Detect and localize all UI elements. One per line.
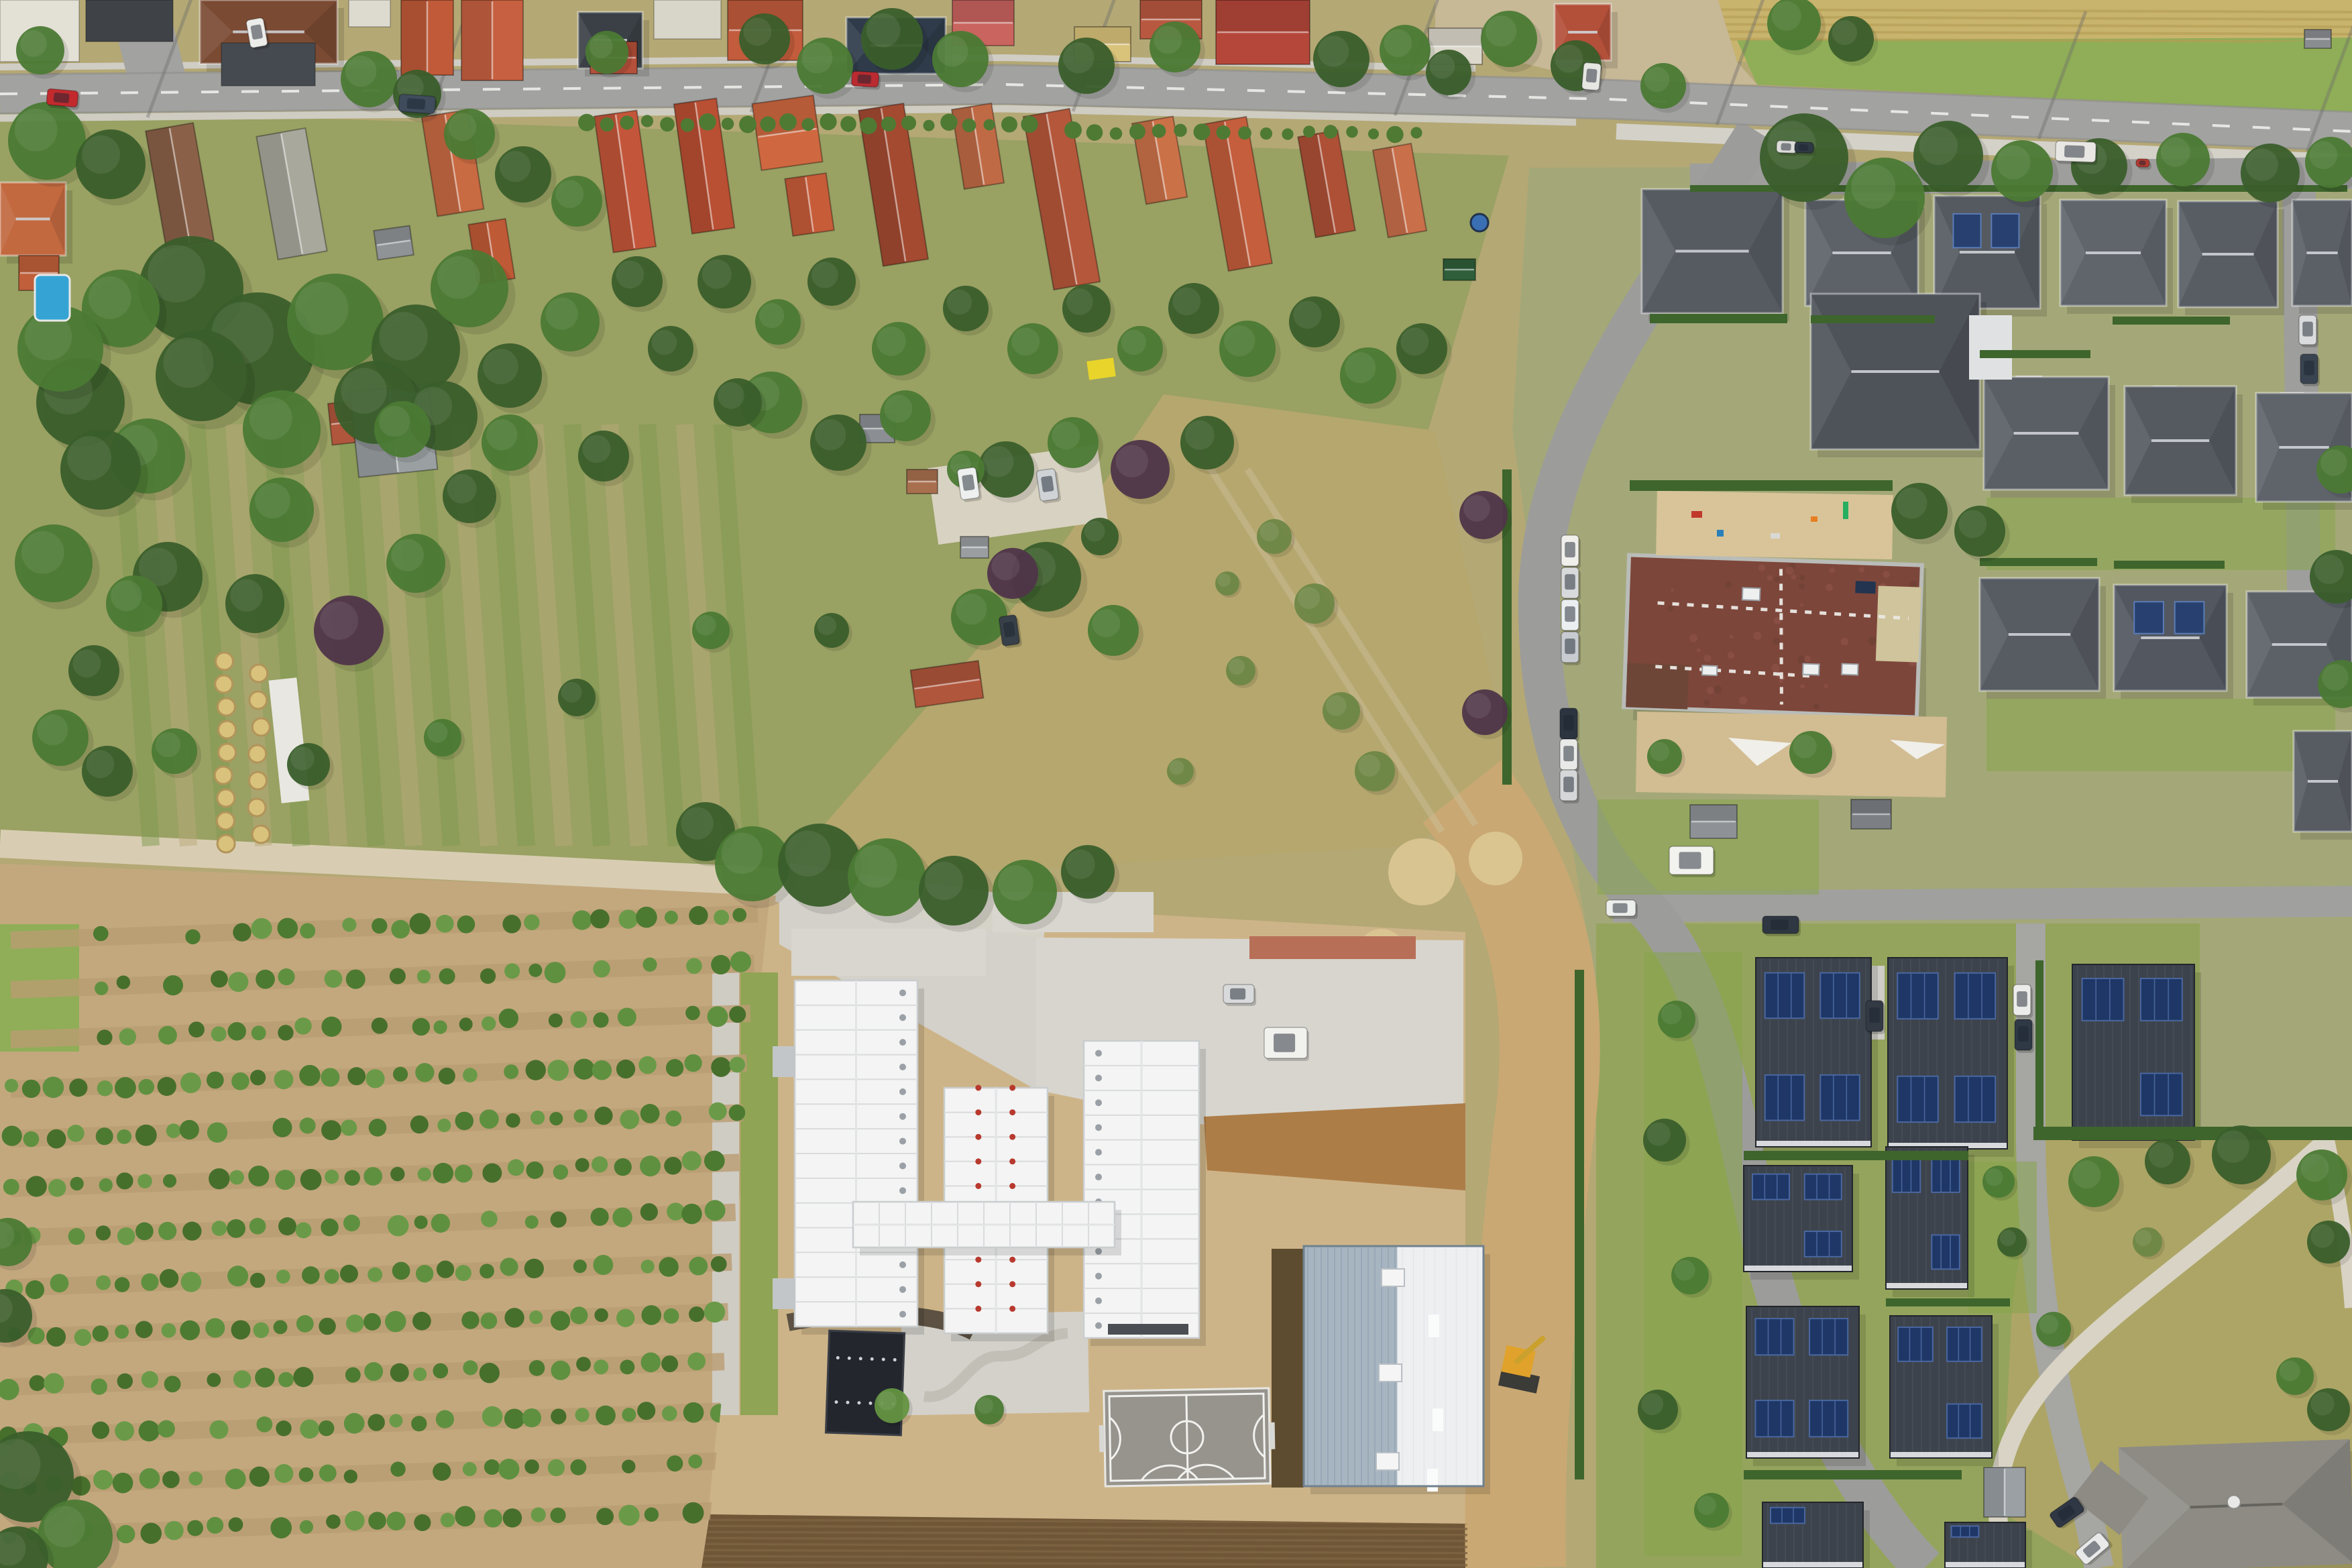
orchard-tree [390, 1363, 409, 1382]
pv-panel [2141, 1073, 2182, 1115]
orchard-tree [326, 1514, 341, 1529]
orchard-tree [667, 1455, 683, 1471]
hay-bale [217, 835, 235, 852]
tree-highlight [2310, 1392, 2334, 1415]
orchard-tree [437, 1261, 454, 1278]
orchard-tree [97, 1029, 112, 1045]
tree-highlight [1345, 352, 1376, 383]
orchard-tree [730, 952, 751, 972]
orchard-tree [392, 1262, 410, 1280]
orchard-tree [140, 1523, 162, 1545]
hedge-bush [1410, 127, 1422, 138]
orchard-tree [91, 1378, 107, 1394]
orchard-tree [180, 1072, 201, 1093]
orchard-tree [596, 1508, 614, 1525]
play-equipment [1811, 516, 1817, 522]
tree-highlight [991, 552, 1019, 580]
orchard-tree [342, 917, 356, 932]
orchard-tree [278, 1025, 294, 1041]
pv-panel [1955, 973, 1996, 1019]
pv-panel [1805, 1174, 1842, 1200]
tree-highlight [854, 845, 897, 888]
hedge [1575, 970, 1584, 1479]
ac-unit [1095, 1298, 1102, 1304]
car-glass [1565, 574, 1575, 590]
pv-panel [1765, 1075, 1804, 1121]
orchard-tree [372, 918, 387, 934]
tree-highlight [345, 56, 376, 87]
pv-panel [1947, 1404, 1982, 1438]
orchard-tree [321, 1068, 339, 1086]
orchard-tree [659, 1257, 679, 1277]
orchard-tree [325, 970, 343, 988]
orchard-tree [594, 1359, 608, 1374]
car-glass [1565, 606, 1575, 622]
orchard-tree [116, 1172, 133, 1189]
skylight [1742, 587, 1760, 600]
tree-highlight [681, 807, 713, 839]
tree-highlight [1919, 127, 1958, 165]
tree-highlight [500, 151, 530, 182]
orchard-tree [227, 1219, 245, 1238]
orchard-tree [480, 1363, 500, 1383]
orchard-tree [666, 1059, 683, 1076]
orchard-tree [576, 1357, 591, 1371]
orchard-tree [340, 1265, 358, 1283]
orchard-tree [321, 1219, 338, 1236]
orchard-tree [682, 1151, 702, 1170]
orchard-tree [439, 1068, 455, 1084]
orchard-tree [115, 1077, 136, 1099]
orchard-tree [729, 1105, 746, 1121]
hedge-bush [923, 120, 935, 131]
orchard-tree [612, 1207, 632, 1227]
orchard-tree [572, 910, 592, 930]
shed [1851, 799, 1891, 829]
orchard-tree [274, 1464, 293, 1483]
lawn [1986, 699, 2335, 771]
orchard-tree [209, 1168, 229, 1189]
car [1561, 567, 1581, 601]
hedge-bush [1174, 124, 1186, 137]
ac-unit [1095, 1124, 1102, 1131]
orchard-tree [455, 1265, 471, 1281]
orchard-tree [300, 1419, 319, 1439]
car-glass [1003, 622, 1016, 638]
hedge-bush [1216, 125, 1230, 139]
pv-panel [1771, 1508, 1805, 1524]
orchard-tree [319, 1420, 334, 1436]
ac-unit [899, 1064, 906, 1070]
hedge-bush [881, 117, 896, 131]
pv-panel [1897, 1076, 1938, 1122]
tree-highlight [1661, 1004, 1682, 1025]
red-joint [1009, 1281, 1015, 1287]
orchard-tree [390, 1167, 404, 1181]
orchard-tree [526, 1060, 546, 1080]
orchard-tree [272, 1118, 292, 1137]
solar-house [1746, 1306, 1859, 1458]
ac-unit [1095, 1174, 1102, 1180]
tree-highlight [1298, 587, 1320, 609]
tree-highlight [702, 260, 732, 289]
hay-bale [215, 675, 233, 693]
orchard-tree [575, 1408, 589, 1422]
car [1606, 900, 1638, 919]
tree-highlight [1326, 695, 1347, 716]
orchard-tree [436, 915, 454, 933]
orchard-tree [553, 1164, 569, 1180]
gym-building [1304, 1246, 1483, 1492]
hedge-bush [1194, 123, 1211, 140]
roof-vent [1376, 1453, 1399, 1470]
tree-highlight [1384, 29, 1412, 57]
orchard-tree [300, 1169, 322, 1190]
village-house [0, 182, 66, 256]
stair-landing [773, 1046, 795, 1077]
orchard-tree [482, 1164, 502, 1183]
sand-heap [1388, 838, 1455, 905]
orchard-tree [48, 1179, 66, 1197]
hedge-bush [1129, 123, 1145, 139]
hay-bale [217, 812, 234, 830]
tree-highlight [1486, 15, 1516, 46]
orchard-tree [530, 1111, 545, 1125]
orchard-tree [573, 1259, 587, 1273]
dark-fence [1108, 1324, 1188, 1335]
orchard-tree [548, 1459, 565, 1476]
stair-landing [773, 1278, 795, 1309]
tree-highlight [1466, 693, 1491, 718]
orchard-tree [732, 908, 746, 922]
orchard-tree [117, 1227, 135, 1245]
orchard-tree [164, 1376, 181, 1392]
car [1560, 739, 1579, 773]
orchard-tree [412, 1018, 430, 1035]
orchard-tree [276, 1420, 291, 1436]
tree-highlight [2310, 1224, 2334, 1247]
orchard-tree [437, 1119, 451, 1132]
tree-highlight [44, 1506, 86, 1548]
shed [374, 225, 414, 260]
orchard-tree [278, 968, 294, 985]
tree-highlight [815, 419, 846, 450]
car-glass [1230, 989, 1245, 1000]
tree-highlight [1185, 421, 1215, 450]
ac-unit [899, 1262, 906, 1268]
yellow-tarp [1086, 357, 1116, 380]
orchard-tree [618, 1505, 639, 1526]
west-walkway [712, 972, 739, 1415]
hedge-bush [1152, 124, 1166, 138]
tree-highlight [1066, 288, 1093, 315]
orchard-tree [590, 909, 610, 929]
tree-highlight [427, 722, 448, 743]
solar-house [1888, 958, 2007, 1149]
orchard-tree [139, 1420, 160, 1441]
orchard-tree [364, 1362, 383, 1381]
tree-highlight [937, 36, 968, 66]
village-house [785, 173, 834, 236]
tree-highlight [743, 17, 771, 46]
orchard-tree [711, 955, 730, 974]
tree-highlight [82, 135, 120, 174]
hay-bale [219, 744, 236, 761]
orchard-tree [640, 1203, 658, 1221]
orchard-tree [504, 1064, 518, 1079]
orchard-tree [620, 1110, 639, 1129]
hedge [2114, 561, 2225, 569]
orchard-tree [455, 1506, 475, 1527]
hay-bale [215, 767, 232, 784]
orchard-tree [225, 1469, 246, 1490]
tree-highlight [582, 435, 610, 463]
tree-highlight [1675, 1260, 1695, 1281]
pv-panel [1947, 1327, 1982, 1361]
car [46, 89, 80, 110]
tree-highlight [718, 382, 744, 409]
orchard-tree [415, 1063, 434, 1082]
orchard-tree [117, 1374, 133, 1390]
pv-panel [1755, 1400, 1793, 1437]
orchard-tree [274, 1070, 294, 1089]
tree-highlight [1115, 445, 1147, 477]
play-equipment [1717, 530, 1724, 537]
orchard-tree [551, 1361, 570, 1380]
pv-panel [1805, 1231, 1842, 1257]
tree-highlight [1644, 67, 1669, 92]
car [2013, 985, 2033, 1018]
orchard-tree [640, 1156, 661, 1176]
hedge-bush [641, 115, 653, 127]
orchard-tree [522, 1408, 541, 1427]
subdivision-house [2114, 585, 2227, 691]
orchard-tree [181, 1272, 201, 1292]
orchard-tree [418, 1168, 431, 1181]
hedge-bush [779, 113, 797, 131]
orchard-tree [319, 1318, 336, 1335]
orchard-tree [385, 1311, 406, 1333]
tree-highlight [1400, 327, 1429, 355]
pv-panel [2082, 978, 2124, 1021]
orchard-tree [433, 1163, 453, 1184]
orchard-tree [409, 913, 431, 934]
tree-highlight [947, 290, 972, 315]
orchard-tree [47, 1129, 66, 1149]
orchard-tree [231, 1320, 250, 1339]
ac-unit [1095, 1273, 1102, 1280]
goal [1270, 1422, 1276, 1449]
tree-highlight [67, 436, 111, 480]
orchard-tree [319, 1465, 337, 1482]
car [851, 71, 881, 90]
tree-highlight [759, 303, 784, 328]
orchard-tree [368, 1268, 382, 1282]
orchard-tree [278, 1372, 294, 1388]
roof-shade [907, 469, 938, 482]
tree-highlight [1772, 1, 1801, 31]
orchard-tree [665, 1111, 681, 1127]
orchard-tree [708, 1006, 728, 1027]
orchard-tree [662, 1406, 677, 1421]
roof-shade [1443, 259, 1475, 270]
orchard-tree [689, 906, 708, 925]
hedge-bush [699, 113, 716, 131]
orchard-tree [119, 1028, 137, 1046]
orchard-tree [96, 1225, 111, 1240]
orchard-tree [344, 1413, 365, 1434]
roof-vent-pipe [1433, 1408, 1443, 1431]
tree-highlight [998, 865, 1033, 901]
hedge-bush [620, 115, 634, 129]
west-green-strip [740, 972, 778, 1415]
ac-unit [899, 1311, 906, 1318]
tree-highlight [448, 113, 476, 141]
tree-highlight [1172, 287, 1200, 315]
orchard-tree [344, 1469, 357, 1483]
orchard-tree [5, 1079, 18, 1093]
orchard-tree [413, 1367, 427, 1381]
lawn [1644, 952, 1742, 1556]
tree-highlight [2000, 1230, 2016, 1246]
orchard-tree [593, 1012, 608, 1027]
orchard-tree [93, 1470, 113, 1490]
orchard-tree [414, 1514, 431, 1531]
orchard-tree [641, 1305, 661, 1325]
orchard-tree [141, 1274, 158, 1291]
orchard-tree [504, 963, 520, 978]
hedge-bush [739, 116, 757, 133]
tree-highlight [37, 714, 68, 745]
orchard-tree [410, 1115, 429, 1133]
hay-bale [217, 789, 235, 807]
tree-highlight [1697, 1496, 1716, 1515]
orchard-tree [233, 923, 251, 941]
orchard-tree [162, 1323, 176, 1338]
hedge-bush [722, 117, 734, 129]
village-building [654, 0, 721, 39]
orchard-tree [368, 1512, 386, 1530]
tree-highlight [1293, 300, 1321, 329]
pv-panel [1898, 1327, 1933, 1361]
subdivision-house [1934, 196, 2040, 309]
orchard-tree [526, 1162, 543, 1179]
modular-building [853, 1202, 1115, 1247]
roof-shade [1140, 0, 1202, 19]
orchard-tree [685, 1006, 700, 1021]
orchard-tree [158, 1077, 176, 1096]
hay-bale [249, 772, 266, 789]
tree-highlight [391, 539, 423, 571]
orchard-tree [277, 918, 298, 939]
roof-shade [461, 0, 492, 80]
red-joint [975, 1085, 981, 1091]
orchard-tree [158, 1026, 177, 1045]
shed [1443, 259, 1475, 280]
tree-highlight [811, 262, 838, 288]
orchard-tree [158, 1222, 176, 1240]
kindergarten [1624, 555, 1922, 717]
orchard-tree [93, 926, 109, 942]
village-building [221, 43, 315, 86]
orchard-tree [730, 1057, 746, 1073]
tree-highlight [2320, 449, 2347, 476]
tree-highlight [652, 330, 677, 355]
sports-court [1099, 1388, 1276, 1487]
cupola [2227, 1495, 2241, 1509]
tree-highlight [1169, 760, 1184, 775]
hedge-bush [600, 117, 614, 131]
orchard-tree [248, 1166, 269, 1186]
pv-panel [1952, 1526, 1979, 1536]
orchard-tree [593, 960, 610, 978]
orchard-tree [688, 1455, 702, 1469]
orchard-tree [431, 1214, 450, 1233]
hay-bale [252, 718, 270, 736]
tree-highlight [1997, 146, 2031, 180]
orchard-tree [594, 1107, 612, 1125]
orchard-tree [388, 1215, 409, 1237]
subdivision-house [2178, 201, 2278, 307]
subdivision-house [1984, 377, 2109, 490]
tree-highlight [483, 349, 518, 384]
orchard-tree [26, 1176, 47, 1196]
orchard-tree [211, 970, 228, 988]
orchard-tree [463, 1360, 478, 1375]
tree-highlight [1650, 742, 1669, 761]
ac-unit [899, 1014, 906, 1021]
white-garage [1969, 315, 2012, 380]
orchard-tree [618, 1008, 636, 1027]
play-equipment [1691, 511, 1702, 518]
hedge-bush [1064, 121, 1082, 139]
car [2299, 315, 2318, 347]
red-joint [1009, 1306, 1015, 1312]
tree-highlight [72, 649, 101, 677]
pv-panel [1820, 973, 1859, 1019]
solar-house [1744, 1166, 1852, 1272]
orchard-tree [346, 1314, 364, 1333]
orchard-tree [250, 1273, 266, 1288]
orchard-tree [346, 970, 366, 989]
orchard-tree [295, 1222, 311, 1238]
orchard-tree [251, 1025, 266, 1040]
orchard-tree [687, 1352, 706, 1370]
car-glass [1613, 903, 1628, 913]
ac-unit [1095, 1323, 1102, 1329]
tree-highlight [722, 833, 763, 875]
orchard-tree [433, 1363, 448, 1379]
parapet [1890, 1452, 1992, 1458]
orchard-tree [274, 1320, 288, 1334]
solar-array [1953, 214, 1980, 247]
orchard-tree [207, 1373, 221, 1387]
orchard-tree [251, 918, 272, 939]
tree-highlight [877, 1391, 897, 1410]
orchard-tree [592, 1156, 608, 1172]
ac-unit [899, 1187, 906, 1194]
orchard-tree [249, 1218, 266, 1235]
orchard-tree [321, 1120, 341, 1140]
orchard-tree [592, 1060, 612, 1080]
orchard-tree [96, 1127, 113, 1145]
orchard-tree [531, 1508, 546, 1522]
hedge [1980, 558, 2097, 566]
red-joint [975, 1109, 981, 1115]
orchard-tree [705, 1200, 726, 1221]
car-glass [1869, 1007, 1880, 1023]
hedge [1886, 1298, 2010, 1306]
